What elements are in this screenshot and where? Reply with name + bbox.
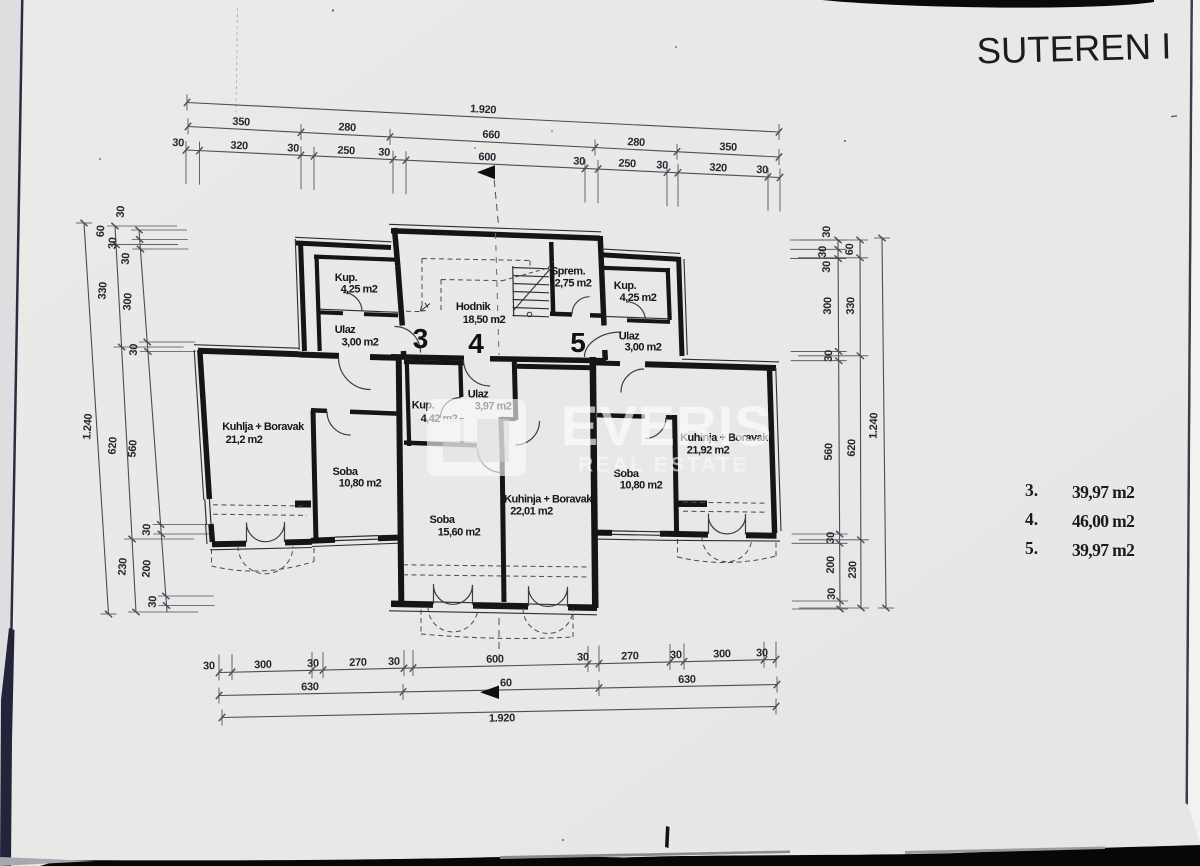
svg-text:30: 30 xyxy=(670,649,682,661)
svg-text:30: 30 xyxy=(573,155,585,168)
svg-text:30: 30 xyxy=(756,164,768,177)
svg-text:3,00 m2: 3,00 m2 xyxy=(625,342,662,354)
svg-text:4,25 m2: 4,25 m2 xyxy=(620,292,657,304)
svg-text:30: 30 xyxy=(115,205,128,218)
svg-text:200: 200 xyxy=(140,559,153,577)
svg-text:Kuhlja + Boravak: Kuhlja + Boravak xyxy=(222,421,305,433)
svg-text:30: 30 xyxy=(656,159,668,172)
svg-text:Sprem.: Sprem. xyxy=(551,266,586,278)
svg-text:30: 30 xyxy=(821,261,833,273)
svg-text:30: 30 xyxy=(307,658,319,670)
svg-text:30: 30 xyxy=(141,523,154,536)
svg-text:2,75 m2: 2,75 m2 xyxy=(555,278,592,290)
svg-text:30: 30 xyxy=(120,252,133,265)
svg-text:60: 60 xyxy=(844,243,856,255)
svg-text:30: 30 xyxy=(203,660,215,672)
svg-text:320: 320 xyxy=(709,162,727,175)
svg-text:620: 620 xyxy=(846,439,859,457)
svg-text:230: 230 xyxy=(847,561,860,579)
svg-text:30: 30 xyxy=(128,343,141,356)
svg-text:30: 30 xyxy=(825,532,837,544)
svg-text:10,80 m2: 10,80 m2 xyxy=(339,478,382,490)
svg-text:4.: 4. xyxy=(1025,509,1038,529)
svg-text:15,60 m2: 15,60 m2 xyxy=(438,527,481,539)
svg-text:30: 30 xyxy=(378,146,390,159)
svg-text:Kuhinja + Boravak: Kuhinja + Boravak xyxy=(504,494,593,506)
svg-text:270: 270 xyxy=(349,657,367,669)
svg-text:600: 600 xyxy=(486,653,504,665)
svg-text:Hodnik: Hodnik xyxy=(456,301,492,313)
svg-text:Kup.: Kup. xyxy=(335,272,358,284)
svg-text:4: 4 xyxy=(468,328,484,359)
svg-text:22,01 m2: 22,01 m2 xyxy=(510,506,553,518)
svg-text:270: 270 xyxy=(621,650,639,662)
svg-text:30: 30 xyxy=(147,595,160,608)
svg-text:300: 300 xyxy=(713,648,731,660)
svg-text:30: 30 xyxy=(287,142,299,155)
svg-text:300: 300 xyxy=(121,292,134,310)
svg-text:560: 560 xyxy=(823,443,836,461)
svg-text:5.: 5. xyxy=(1025,538,1038,558)
svg-text:620: 620 xyxy=(106,436,119,454)
svg-text:30: 30 xyxy=(756,647,768,659)
svg-text:Soba: Soba xyxy=(430,514,456,526)
svg-text:30: 30 xyxy=(388,656,400,668)
svg-text:30: 30 xyxy=(826,588,838,600)
svg-text:330: 330 xyxy=(96,281,109,299)
svg-text:30: 30 xyxy=(821,226,833,238)
svg-text:1.240: 1.240 xyxy=(81,413,95,440)
svg-text:EVERIS: EVERIS xyxy=(561,394,772,457)
svg-text:18,50 m2: 18,50 m2 xyxy=(463,314,506,326)
svg-text:600: 600 xyxy=(478,151,496,164)
svg-text:46,00 m2: 46,00 m2 xyxy=(1072,511,1134,531)
svg-text:630: 630 xyxy=(678,674,696,686)
svg-text:10,80 m2: 10,80 m2 xyxy=(620,480,663,492)
svg-text:60: 60 xyxy=(500,677,512,689)
svg-text:660: 660 xyxy=(482,129,500,142)
svg-text:3,00 m2: 3,00 m2 xyxy=(342,337,379,349)
svg-text:3.: 3. xyxy=(1025,480,1038,500)
svg-text:39,97 m2: 39,97 m2 xyxy=(1072,540,1134,560)
svg-text:Ulaz: Ulaz xyxy=(468,389,490,401)
svg-text:250: 250 xyxy=(337,144,355,157)
svg-text:350: 350 xyxy=(719,141,737,154)
svg-text:4,25 m2: 4,25 m2 xyxy=(341,284,378,296)
svg-text:1.920: 1.920 xyxy=(470,103,497,116)
svg-text:Kup.: Kup. xyxy=(614,280,637,292)
svg-text:300: 300 xyxy=(254,659,272,671)
svg-text:Soba: Soba xyxy=(333,466,359,478)
svg-text:Ulaz: Ulaz xyxy=(335,324,357,336)
svg-text:REAL ESTATE: REAL ESTATE xyxy=(578,454,749,477)
svg-text:3: 3 xyxy=(413,323,429,354)
svg-text:280: 280 xyxy=(338,121,356,134)
svg-text:350: 350 xyxy=(232,116,250,129)
svg-text:39,97 m2: 39,97 m2 xyxy=(1072,482,1134,502)
svg-text:5: 5 xyxy=(570,327,586,358)
svg-text:30: 30 xyxy=(577,651,589,663)
svg-text:630: 630 xyxy=(301,681,319,693)
svg-text:SUTEREN I: SUTEREN I xyxy=(976,25,1172,71)
svg-text:60: 60 xyxy=(95,225,108,238)
svg-text:330: 330 xyxy=(845,297,858,315)
svg-text:250: 250 xyxy=(618,157,636,170)
svg-text:1.920: 1.920 xyxy=(489,712,515,725)
svg-text:21,2 m2: 21,2 m2 xyxy=(226,434,263,446)
svg-text:300: 300 xyxy=(822,297,835,315)
svg-text:230: 230 xyxy=(116,557,129,575)
svg-text:560: 560 xyxy=(126,439,139,457)
svg-text:1.240: 1.240 xyxy=(868,413,881,440)
svg-text:280: 280 xyxy=(627,136,645,149)
svg-text:200: 200 xyxy=(825,556,838,574)
svg-text:30: 30 xyxy=(817,246,829,258)
svg-text:30: 30 xyxy=(107,237,120,250)
svg-text:320: 320 xyxy=(230,140,248,153)
svg-text:30: 30 xyxy=(172,137,184,150)
